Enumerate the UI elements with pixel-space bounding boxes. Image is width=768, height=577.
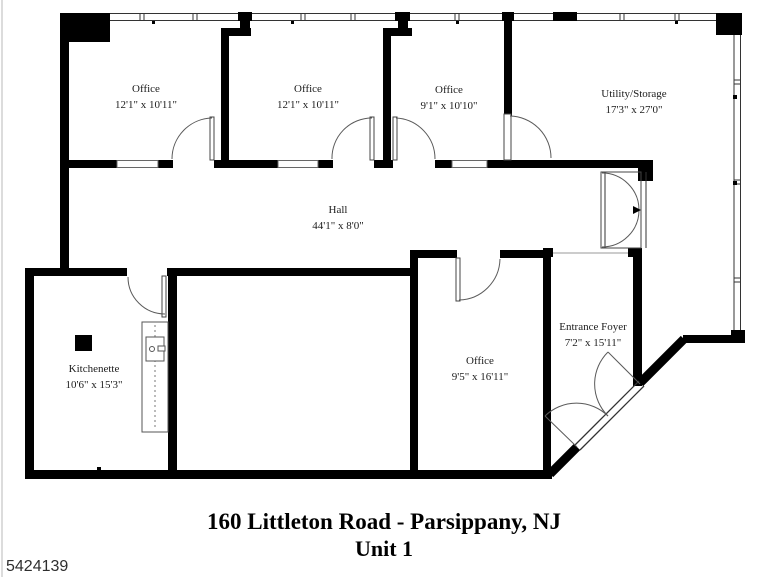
- room-dims-office4: 9'5" x 16'11": [452, 371, 509, 383]
- hall-double-doors: [601, 172, 646, 248]
- kitchenette-fixtures: [75, 322, 168, 432]
- footer: 160 Littleton Road - Parsippany, NJ Unit…: [207, 509, 561, 561]
- room-dims-foyer: 7'2" x 15'11": [565, 337, 622, 349]
- room-label-office4: Office: [466, 355, 494, 367]
- southeast-exterior-wall: [683, 335, 745, 343]
- entry-double-doors: [545, 352, 640, 447]
- floorplan-page: Office 12'1" x 10'11" Office 12'1" x 10'…: [0, 0, 768, 577]
- room-dims-office1: 12'1" x 10'11": [115, 99, 177, 111]
- office3-door: [393, 117, 397, 160]
- kitchenette-door: [162, 276, 166, 317]
- faucet: [158, 346, 165, 351]
- diagonal-walls: [550, 339, 684, 474]
- south-exterior-wall: [25, 470, 552, 479]
- room-label-foyer: Entrance Foyer: [559, 321, 627, 333]
- foyer-east-wall: [633, 250, 642, 386]
- kitchenette-west-wall: [25, 268, 34, 479]
- room-label-hall: Hall: [329, 204, 348, 216]
- office1-door: [210, 117, 214, 160]
- room-label-office3: Office: [435, 84, 463, 96]
- room-label-utility: Utility/Storage: [601, 88, 667, 100]
- corner-block-top-right: [716, 13, 742, 35]
- room-dims-kitchenette: 10'6" x 15'3": [66, 379, 123, 391]
- room-dims-office2: 12'1" x 10'11": [277, 99, 339, 111]
- utility-door: [504, 114, 511, 160]
- column: [75, 335, 92, 351]
- door-swing-arrow: [633, 206, 641, 214]
- room-dims-utility: 17'3" x 27'0": [606, 104, 663, 116]
- hall-north-wall: [487, 160, 640, 168]
- room-label-office2: Office: [294, 83, 322, 95]
- kitchenette-east-wall: [168, 268, 177, 479]
- window-wall-right: [734, 22, 742, 332]
- room-label-kitchenette: Kitchenette: [69, 363, 120, 375]
- partition-office1-office2: [221, 28, 229, 167]
- floor-plan-image: Office 12'1" x 10'11" Office 12'1" x 10'…: [0, 0, 768, 577]
- room-label-office1: Office: [132, 83, 160, 95]
- photo-id-watermark: 5424139: [6, 558, 68, 575]
- entry-storefront: [575, 381, 644, 450]
- room-dims-office3: 9'1" x 10'10": [421, 100, 478, 112]
- address-title: 160 Littleton Road - Parsippany, NJ: [207, 509, 561, 534]
- left-exterior-wall: [60, 13, 69, 276]
- office2-door: [370, 117, 374, 160]
- office4-door: [456, 258, 460, 301]
- partition-office3-utility: [504, 20, 512, 116]
- partition-office2-office3: [383, 28, 391, 167]
- unit-title: Unit 1: [355, 536, 413, 561]
- window-wall-top: [105, 13, 733, 21]
- hall-south-wall: [167, 268, 418, 276]
- room-dims-hall: 44'1" x 8'0": [312, 220, 363, 232]
